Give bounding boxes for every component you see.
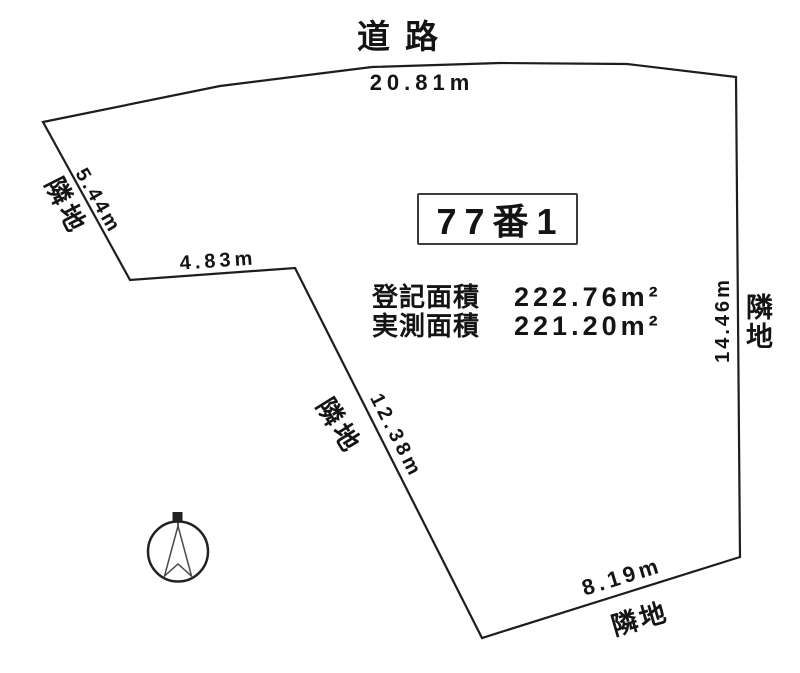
area-table: 登記面積 222.76m² 実測面積 221.20m² — [372, 277, 662, 335]
dimension-mid-left-edge: 4.83m — [179, 248, 257, 273]
compass-circle — [148, 522, 208, 582]
land-survey-diagram: 道路 20.81m 5.44m 4.83m 12.38m 14.46m 8.19… — [0, 0, 800, 673]
north-compass-icon — [148, 512, 208, 582]
compass-north-marker — [173, 512, 183, 522]
registered-area-row: 登記面積 222.76m² — [372, 277, 662, 306]
measured-area-row: 実測面積 221.20m² — [372, 306, 662, 335]
parcel-number-box: 77番1 — [417, 193, 578, 245]
neighbor-label-right: 隣地 — [746, 294, 776, 352]
dimension-right-edge: 14.46m — [713, 277, 733, 363]
registered-area-value: 222.76m² — [514, 282, 662, 313]
measured-area-label: 実測面積 — [372, 306, 480, 343]
parcel-number-label: 77番1 — [430, 193, 564, 245]
dimension-top-edge: 20.81m — [370, 72, 475, 94]
measured-area-value: 221.20m² — [514, 311, 662, 342]
road-label: 道路 — [357, 20, 453, 53]
compass-needle — [165, 526, 192, 576]
